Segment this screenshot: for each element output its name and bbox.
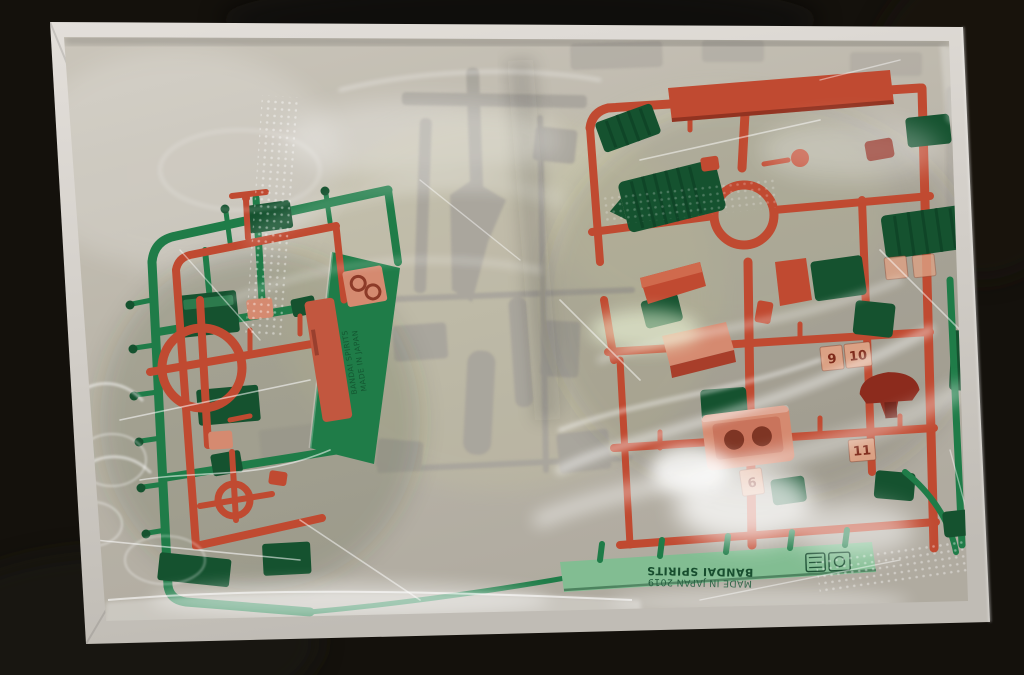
red-gate-tag xyxy=(342,265,388,307)
salmon-part xyxy=(208,430,233,450)
photo-canvas: BANDAI SPIRITS MADE IN JAPAN xyxy=(0,0,1024,675)
part-number-tag-glared xyxy=(884,256,908,280)
red-wedge-part xyxy=(775,258,812,306)
highlight-blob xyxy=(590,310,700,350)
red-stub-tip xyxy=(242,194,250,202)
rim-inner-shadow xyxy=(64,40,949,44)
photo-of-model-kit-box: BANDAI SPIRITS MADE IN JAPAN xyxy=(0,0,1024,675)
origin-text: MADE IN JAPAN 2019 xyxy=(647,576,752,589)
highlight-blob xyxy=(795,504,915,556)
highlight-blob xyxy=(760,120,940,180)
gray-cylinder-part xyxy=(463,350,496,455)
part-number-tag-glared xyxy=(912,254,936,278)
green-part xyxy=(852,300,895,338)
red-part xyxy=(700,155,720,171)
tag-digit: 9 xyxy=(827,352,838,368)
highlight-blob xyxy=(280,100,560,180)
red-part xyxy=(268,470,288,486)
red-rail xyxy=(232,452,236,520)
highlight-blob xyxy=(650,446,730,494)
tag-digit: 11 xyxy=(852,443,871,460)
molded-brand-text: BANDAI SPIRITS MADE IN JAPAN 2019 xyxy=(646,564,753,589)
